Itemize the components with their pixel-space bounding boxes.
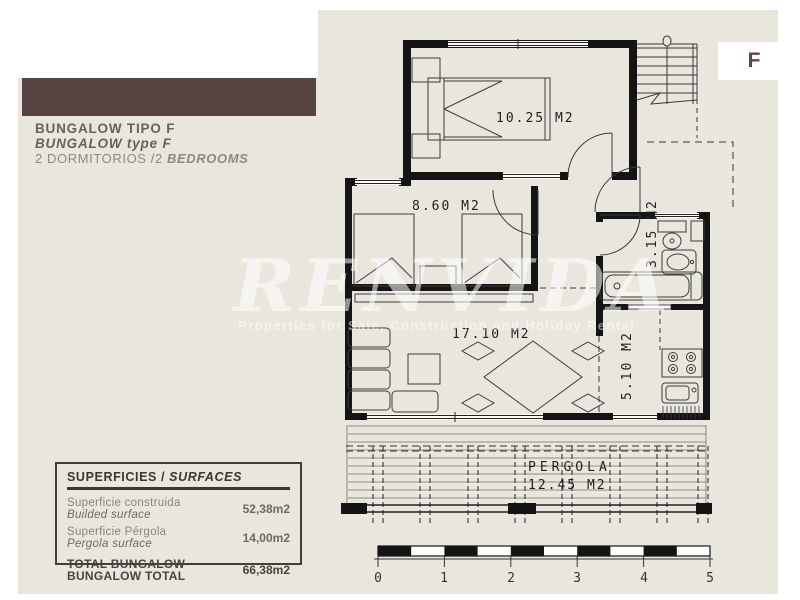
table-total-row: TOTAL BUNGALOW BUNGALOW TOTAL 66,38m2 [67,558,290,582]
row-value: 52,38m2 [243,502,290,516]
page-background: BUNGALOW TIPO F BUNGALOW type F 2 DORMIT… [0,0,800,600]
scale-tick-4: 4 [640,571,648,586]
scale-tick-5: 5 [706,571,714,586]
watermark-tagline: Properties for Sale, Construction and Ho… [238,318,653,333]
pergola-structure [341,425,712,523]
room-label-pergola-area: 12.45 M2 [528,478,607,493]
row-label-en: Pergola surface [67,538,166,550]
room-label-pergola: PERGOLA [528,460,611,475]
scale-tick-3: 3 [573,571,581,586]
sofa-icon [348,328,438,412]
surfaces-table-title: SUPERFICIES / SURFACES [67,470,290,490]
stairs-icon [637,36,697,138]
surfaces-title-es: SUPERFICIES / [67,470,169,484]
room-label-bedroom2: 8.60 M2 [412,199,481,214]
row-label-es: Superficie construida [67,497,181,509]
total-label-en: BUNGALOW TOTAL [67,570,185,582]
row-label-en: Builded surface [67,509,181,521]
surfaces-table: SUPERFICIES / SURFACES Superficie constr… [55,462,302,565]
scale-bar: 0 1 2 3 4 5 [374,546,714,586]
watermark-brand: RENVIDA [233,243,680,328]
scale-tick-0: 0 [374,571,382,586]
scale-tick-2: 2 [507,571,515,586]
total-value: 66,38m2 [243,563,290,577]
dining-table-icon [462,341,604,413]
room-label-kitchen: 5.10 M2 [620,331,635,400]
coffee-table-icon [408,354,440,384]
scale-tick-1: 1 [440,571,448,586]
row-value: 14,00m2 [243,531,290,545]
table-row: Superficie Pérgola Pergola surface 14,00… [67,526,290,550]
doors [493,133,640,255]
room-label-bedroom1: 10.25 M2 [496,111,575,126]
row-label-es: Superficie Pérgola [67,526,166,538]
table-row: Superficie construida Builded surface 52… [67,497,290,521]
double-bed-icon [412,58,550,158]
surfaces-title-en: SURFACES [169,470,242,484]
